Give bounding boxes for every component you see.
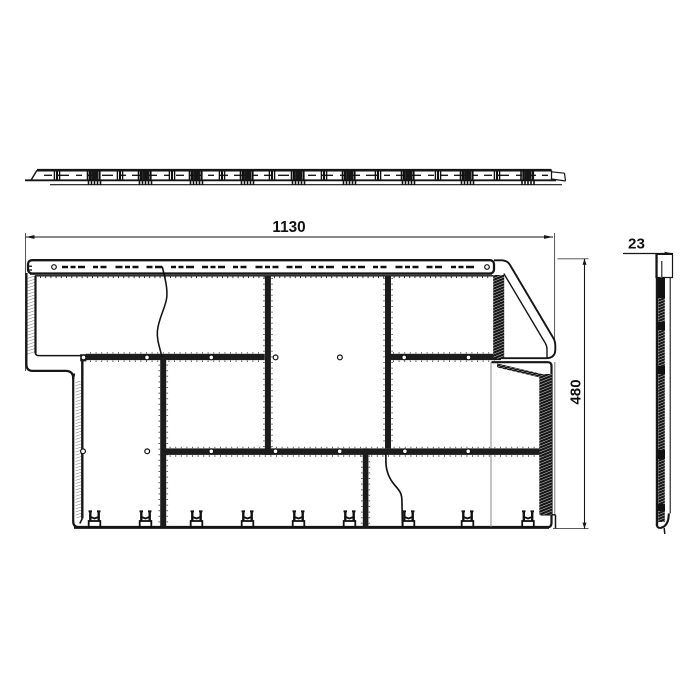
svg-text:1130: 1130 [272,219,305,236]
svg-text:23: 23 [628,236,645,253]
svg-text:480: 480 [568,379,585,404]
